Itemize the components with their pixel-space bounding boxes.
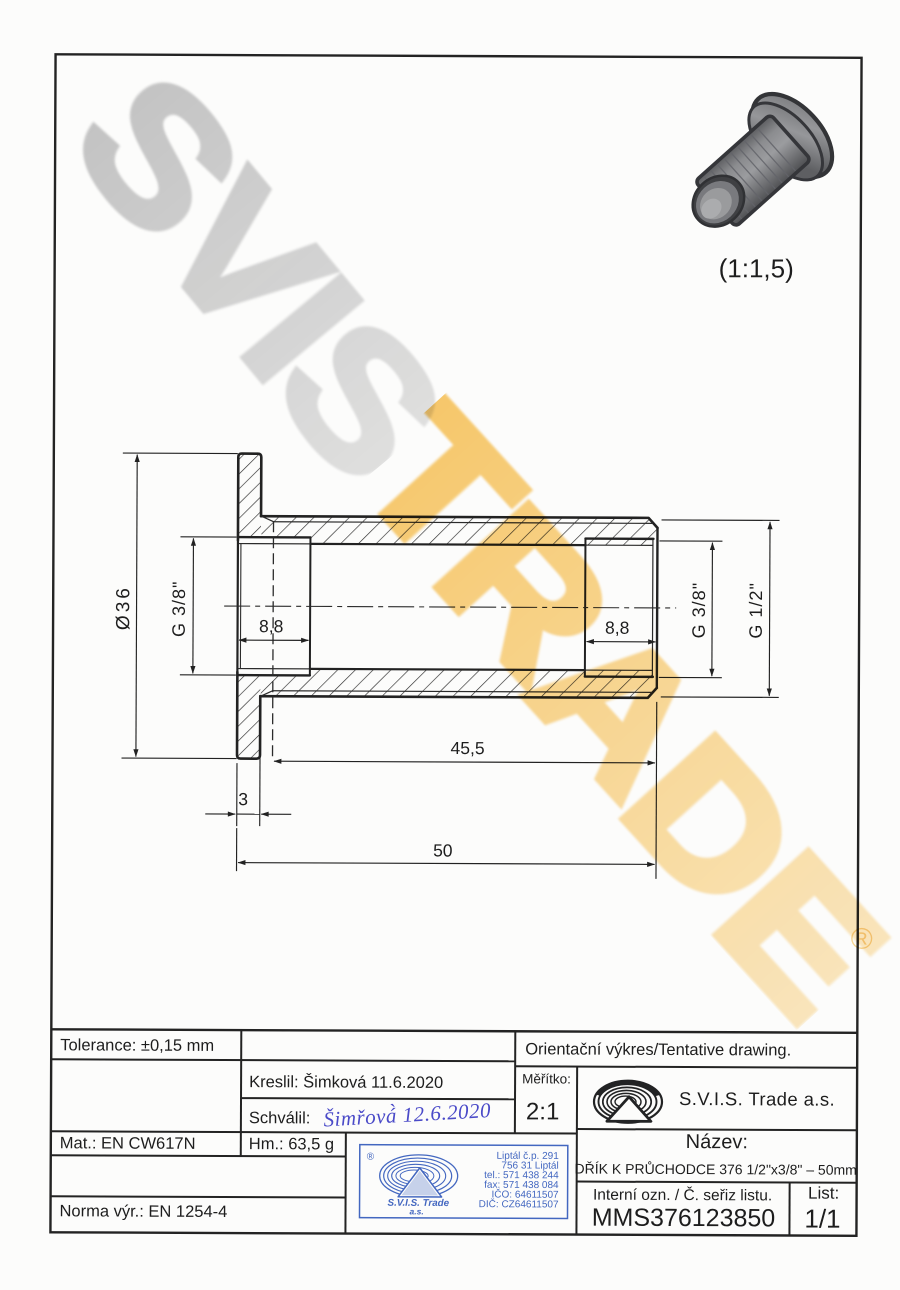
svg-text:3: 3 bbox=[238, 789, 248, 809]
svg-text:45,5: 45,5 bbox=[451, 738, 485, 758]
svg-text:Měřítko:: Měřítko: bbox=[522, 1071, 571, 1086]
svg-text:8,8: 8,8 bbox=[259, 616, 283, 636]
svg-text:a.s.: a.s. bbox=[410, 1206, 424, 1216]
svg-text:Název:: Název: bbox=[686, 1131, 748, 1153]
svg-text:DIČ: CZ64611507: DIČ: CZ64611507 bbox=[479, 1197, 559, 1210]
svg-text:Hm.: 63,5 g: Hm.: 63,5 g bbox=[249, 1135, 334, 1153]
svg-text:Orientační výkres/Tentative dr: Orientační výkres/Tentative drawing. bbox=[525, 1040, 791, 1059]
svg-text:Mat.: EN CW617N: Mat.: EN CW617N bbox=[60, 1134, 196, 1153]
svg-text:Kreslil: Šimková 11.6.2020: Kreslil: Šimková 11.6.2020 bbox=[249, 1072, 443, 1092]
svg-text:MMS376123850: MMS376123850 bbox=[592, 1204, 776, 1233]
svg-text:Šimřová̀ 12.6.2020: Šimřová̀ 12.6.2020 bbox=[323, 1098, 492, 1131]
svg-text:G 1/2": G 1/2" bbox=[746, 582, 766, 639]
svg-text:Schválil:: Schválil: bbox=[249, 1109, 311, 1127]
svg-text:2:1: 2:1 bbox=[526, 1098, 559, 1125]
svg-text:Tolerance: ±0,15 mm: Tolerance: ±0,15 mm bbox=[60, 1036, 214, 1055]
svg-text:Interní ozn. / Č. seřiz listu.: Interní ozn. / Č. seřiz listu. bbox=[593, 1187, 772, 1205]
svg-text:DŘÍK K PRŮCHODCE 376 1/2"x3/8": DŘÍK K PRŮCHODCE 376 1/2"x3/8" – 50mm bbox=[575, 1160, 857, 1178]
svg-text:List:: List: bbox=[808, 1184, 839, 1203]
svg-text:®: ® bbox=[367, 1152, 375, 1163]
svg-text:(1:1,5): (1:1,5) bbox=[719, 253, 794, 283]
svg-text:Ø36: Ø36 bbox=[113, 585, 134, 630]
svg-text:S.V.I.S. Trade a.s.: S.V.I.S. Trade a.s. bbox=[679, 1088, 835, 1110]
svg-text:1/1: 1/1 bbox=[804, 1204, 840, 1234]
svg-text:Norma výr.: EN 1254-4: Norma výr.: EN 1254-4 bbox=[59, 1202, 227, 1221]
svg-text:50: 50 bbox=[433, 840, 453, 860]
svg-text:G 3/8": G 3/8" bbox=[169, 581, 189, 638]
